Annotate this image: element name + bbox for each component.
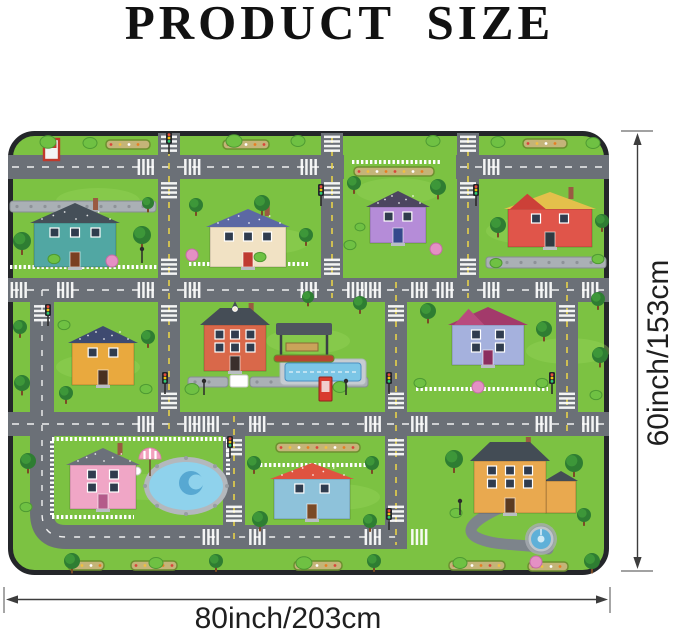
product-size-figure: PRODUCT SIZE 60inch/153cm 80inch/203cm xyxy=(0,0,679,641)
pond xyxy=(143,456,229,516)
width-dimension-label: 80inch/203cm xyxy=(128,602,448,636)
rug-illustration xyxy=(8,131,609,575)
page-title: PRODUCT SIZE xyxy=(0,0,679,51)
fountain xyxy=(525,523,557,555)
phone-booth xyxy=(319,377,332,401)
height-dimension-label: 60inch/153cm xyxy=(642,193,679,513)
